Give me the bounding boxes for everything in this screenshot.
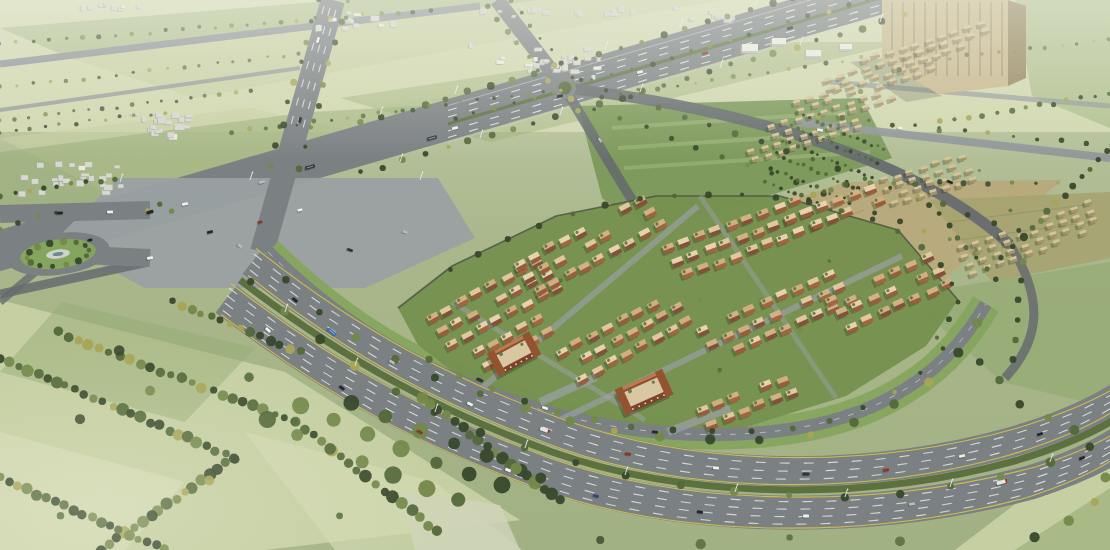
tree <box>807 431 814 438</box>
tree <box>505 236 511 242</box>
tree <box>521 398 528 405</box>
tree <box>973 318 983 328</box>
tree <box>772 183 775 186</box>
tree <box>602 201 609 208</box>
tree <box>1015 317 1021 323</box>
tree <box>978 169 981 172</box>
tree <box>1045 414 1052 421</box>
tree <box>1020 258 1027 265</box>
tree <box>953 348 963 358</box>
tree <box>27 189 31 193</box>
tree <box>763 180 767 184</box>
tree <box>476 428 486 438</box>
tree <box>1015 296 1022 303</box>
tree <box>510 463 522 475</box>
tree <box>451 493 465 507</box>
city-block <box>106 173 112 177</box>
tree <box>822 189 826 193</box>
city-block <box>118 184 123 187</box>
tree <box>98 179 103 184</box>
tree <box>918 371 922 375</box>
tree <box>709 428 715 434</box>
tree <box>188 305 197 314</box>
city-block <box>69 163 75 167</box>
tree <box>888 186 892 190</box>
tree <box>755 436 764 445</box>
tree <box>1016 400 1025 409</box>
tree <box>1091 498 1099 506</box>
tree <box>462 467 477 482</box>
tree <box>112 177 117 182</box>
tree <box>591 416 598 423</box>
render-canvas <box>0 0 1110 550</box>
tree <box>897 218 903 224</box>
tree <box>863 177 867 181</box>
tree <box>768 166 773 171</box>
tree <box>746 163 750 167</box>
tree <box>1010 356 1017 363</box>
aerial-township-render <box>0 0 1110 550</box>
tree <box>1018 277 1024 283</box>
tree <box>815 184 820 189</box>
tree <box>863 173 866 176</box>
corner-haze <box>0 340 420 550</box>
tree <box>637 196 643 202</box>
tree <box>918 244 925 251</box>
tree <box>875 161 879 165</box>
tree <box>448 267 453 272</box>
tree <box>946 316 952 322</box>
tree <box>985 181 991 187</box>
tree <box>1069 425 1079 435</box>
light-head <box>252 172 254 174</box>
light-head <box>422 172 424 174</box>
vehicle-body <box>803 515 809 518</box>
tree <box>828 259 831 262</box>
tree <box>769 171 774 176</box>
tree <box>696 539 706 549</box>
tree <box>480 449 494 463</box>
tree <box>448 438 460 450</box>
tree <box>790 176 794 180</box>
tree <box>947 223 953 229</box>
tree <box>801 180 805 184</box>
tree <box>891 181 896 186</box>
tree <box>961 180 967 186</box>
tree <box>799 193 804 198</box>
tree <box>1064 515 1074 525</box>
tree <box>779 186 783 190</box>
tree <box>442 410 451 419</box>
tree <box>844 164 847 167</box>
tree <box>358 169 363 174</box>
tree <box>1010 180 1015 185</box>
tree <box>974 256 978 260</box>
tree <box>896 490 904 498</box>
tree <box>1012 337 1018 343</box>
vehicle-body <box>57 212 63 215</box>
tree <box>997 473 1005 481</box>
tree <box>425 398 436 409</box>
tree <box>570 212 575 217</box>
tree <box>860 405 865 410</box>
city-block <box>77 180 84 186</box>
tree <box>940 201 946 207</box>
tree <box>786 492 792 498</box>
tree <box>798 328 803 333</box>
city-block <box>19 191 26 196</box>
tree <box>14 191 18 195</box>
tree <box>895 229 900 234</box>
tree <box>832 178 835 181</box>
tree <box>810 191 817 198</box>
tree <box>596 536 604 544</box>
tree <box>849 418 858 427</box>
light-head <box>847 489 849 491</box>
tree <box>993 277 998 282</box>
tree <box>69 181 74 186</box>
tree <box>998 255 1003 260</box>
tree <box>611 428 618 435</box>
tree <box>809 185 812 188</box>
tree <box>555 495 564 504</box>
tree <box>921 229 926 234</box>
tree <box>950 281 955 286</box>
tree <box>872 211 877 216</box>
tree <box>924 378 934 388</box>
tree <box>217 316 224 323</box>
tree <box>572 459 579 466</box>
tree <box>839 208 844 213</box>
tree <box>521 444 528 451</box>
vehicle-body <box>713 466 719 469</box>
light-head <box>437 404 439 406</box>
tree <box>431 409 438 416</box>
tree <box>802 163 806 167</box>
tree <box>955 235 960 240</box>
tree <box>926 202 932 208</box>
tree <box>976 358 984 366</box>
city-block <box>115 165 120 168</box>
tree <box>489 386 495 392</box>
tree <box>296 165 303 172</box>
tree <box>816 171 820 175</box>
tree <box>628 424 634 430</box>
tree <box>1010 244 1015 249</box>
tree <box>806 199 812 205</box>
tree <box>787 191 790 194</box>
tree <box>889 399 898 408</box>
tree <box>935 336 939 340</box>
tree <box>974 248 979 253</box>
tree <box>316 309 322 315</box>
tree <box>705 434 715 444</box>
tree <box>937 179 942 184</box>
tree <box>836 180 839 183</box>
tree <box>670 427 677 434</box>
city-block <box>37 163 44 168</box>
tree <box>749 428 755 434</box>
city-block <box>39 190 45 195</box>
tree <box>991 220 997 226</box>
tree <box>554 408 561 415</box>
tree <box>740 193 744 197</box>
tree <box>269 163 274 168</box>
tree <box>208 312 215 319</box>
tree <box>790 426 796 432</box>
tree <box>938 262 944 268</box>
tree <box>773 194 780 201</box>
tree <box>36 214 40 218</box>
tree <box>1052 200 1059 207</box>
tree <box>827 418 833 424</box>
tree <box>1034 181 1038 185</box>
tree <box>432 526 442 536</box>
tree <box>15 220 21 226</box>
tree <box>1062 192 1069 199</box>
tree <box>169 209 174 214</box>
tree <box>282 276 290 284</box>
tree <box>83 179 88 184</box>
tree <box>915 194 920 199</box>
tree <box>1056 181 1060 185</box>
tree <box>849 168 853 172</box>
tree <box>41 185 46 190</box>
light-head <box>287 304 289 306</box>
tree <box>937 211 942 216</box>
tree <box>677 481 685 489</box>
tree <box>494 477 511 494</box>
tree <box>941 346 946 351</box>
tree <box>1008 208 1012 212</box>
tree <box>169 298 175 304</box>
tree <box>456 373 462 379</box>
tree <box>857 169 861 173</box>
tree <box>157 202 162 207</box>
tree <box>672 193 677 198</box>
tree <box>786 534 792 540</box>
tree <box>566 416 576 426</box>
tree <box>237 324 243 330</box>
light-head <box>527 440 529 442</box>
light-head <box>737 484 739 486</box>
light-head <box>122 174 124 176</box>
tree <box>1043 208 1050 215</box>
tree <box>1046 457 1056 467</box>
tree <box>730 487 739 496</box>
light-head <box>1052 454 1054 456</box>
tree <box>948 237 952 241</box>
tree <box>256 332 264 340</box>
tree <box>418 480 435 497</box>
tree <box>851 185 855 189</box>
city-block <box>32 179 39 184</box>
tree <box>1088 167 1093 172</box>
tree <box>995 376 1003 384</box>
tree <box>451 417 460 426</box>
tree <box>824 172 828 176</box>
tree <box>965 212 971 218</box>
vehicle-body <box>107 211 113 214</box>
tree <box>54 184 59 189</box>
city-block <box>56 162 63 167</box>
tree <box>458 422 469 433</box>
tree <box>835 161 839 165</box>
light-head <box>952 479 954 481</box>
vehicle <box>802 515 809 519</box>
tree <box>538 329 541 332</box>
tree <box>895 536 905 546</box>
tree <box>1029 532 1039 542</box>
tree <box>792 191 796 195</box>
city-block <box>81 173 89 176</box>
tree <box>784 172 788 176</box>
tree <box>535 472 546 483</box>
tree <box>426 356 433 363</box>
city-block <box>85 162 92 167</box>
city-block <box>21 175 28 180</box>
tree <box>245 327 255 337</box>
vehicle-body <box>802 472 809 475</box>
tree <box>870 176 874 180</box>
tree <box>1030 225 1036 231</box>
tree <box>843 196 846 199</box>
tree <box>1086 443 1095 452</box>
tree <box>717 368 722 373</box>
city-block <box>58 175 63 181</box>
tree <box>705 192 712 199</box>
tree <box>475 251 482 258</box>
tree <box>842 181 848 187</box>
tree <box>913 181 919 187</box>
tree <box>796 178 800 182</box>
tree <box>197 311 203 317</box>
light-head <box>627 467 629 469</box>
city-block <box>89 176 94 181</box>
tree <box>430 457 442 469</box>
tree <box>809 167 813 171</box>
tree <box>984 266 989 271</box>
tree <box>1020 233 1028 241</box>
tree <box>828 187 834 193</box>
tree <box>1080 174 1085 179</box>
tree <box>963 245 968 250</box>
tree <box>1069 183 1076 190</box>
road <box>0 210 150 214</box>
city-block <box>79 166 86 171</box>
tree <box>892 390 896 394</box>
tree <box>956 300 961 305</box>
tree <box>380 165 386 171</box>
tree <box>835 165 841 171</box>
tree <box>796 163 799 166</box>
atmospheric-haze <box>0 0 1110 160</box>
tree <box>227 321 233 327</box>
tree <box>776 170 780 174</box>
tree <box>431 374 439 382</box>
tree <box>477 390 484 397</box>
tree <box>870 217 875 222</box>
tree <box>1038 218 1044 224</box>
tree <box>177 302 186 311</box>
tree <box>698 298 701 301</box>
tree <box>423 521 433 531</box>
tree <box>841 493 849 501</box>
tree <box>247 278 254 285</box>
tree <box>536 223 542 229</box>
vehicle <box>801 472 809 476</box>
tree <box>54 326 63 335</box>
tree <box>1016 228 1021 233</box>
